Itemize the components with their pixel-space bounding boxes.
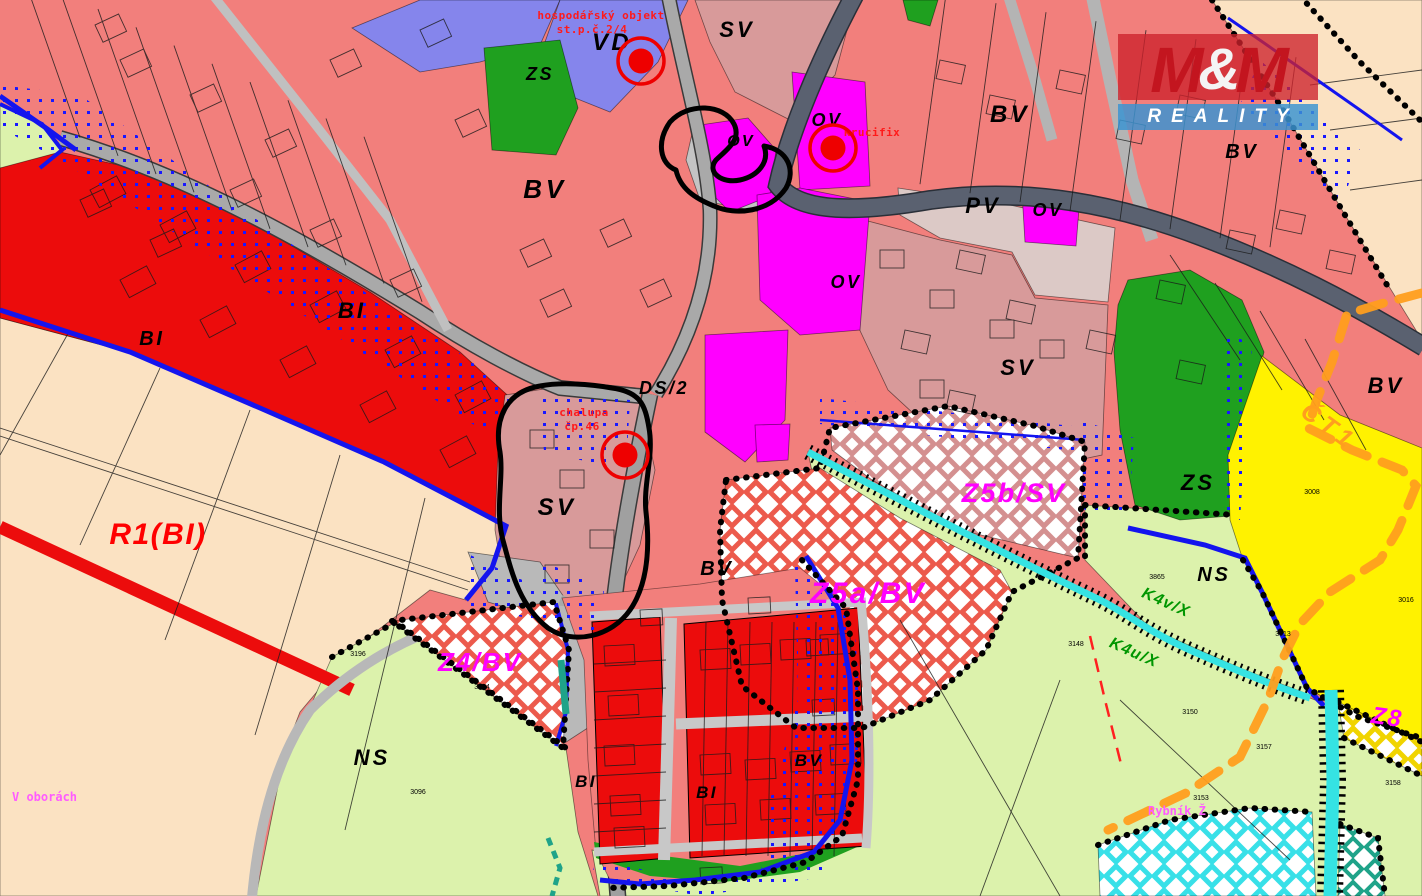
map-label-zs: ZS (1180, 470, 1215, 495)
map-label-ns: NS (354, 745, 391, 770)
map-label-chalupa: chalupa (559, 406, 608, 419)
parcel-number-3196: 3196 (350, 651, 366, 658)
parcel-number-3150: 3150 (1182, 709, 1198, 716)
map-label-z4-bv: Z4/BV (437, 647, 523, 677)
map-label-bv: BV (1225, 141, 1258, 163)
map-label-z5b-sv: Z5b/SV (961, 478, 1066, 508)
map-label-z5a-bv: Z5a/BV (809, 577, 927, 610)
map-label-bv: BV (700, 558, 733, 580)
parcel-number-3008: 3008 (1304, 489, 1320, 496)
zone-ov-e (755, 424, 790, 462)
map-label-bv: BV (795, 751, 823, 770)
map-label-bv: BV (990, 101, 1030, 128)
map-label-bi: BI (575, 772, 597, 791)
parcel-number-3096: 3096 (410, 789, 426, 796)
map-label-bv: BV (523, 174, 566, 204)
parcel-number-3148: 3148 (1068, 641, 1084, 648)
map-label-sv: SV (538, 494, 577, 521)
stream2-main (1330, 690, 1333, 896)
map-label-sv: SV (719, 17, 755, 42)
map-label-ov: OV (830, 272, 861, 292)
map-label-hospodářský-objekt: hospodářský objekt (537, 9, 664, 22)
map-label-ov: OV (1032, 200, 1063, 220)
map-label-bi: BI (139, 328, 165, 350)
map-label-rybník-ž: Rybník Ž (1148, 803, 1206, 818)
map-label-bi: BI (338, 298, 366, 323)
parcel-number-3016: 3016 (1398, 597, 1414, 604)
map-label-v-oborách: V oborách (12, 790, 77, 804)
map-label-sv: SV (1000, 355, 1036, 380)
parcel-number-3865: 3865 (1149, 574, 1165, 581)
parcel-number-3013: 3013 (1275, 631, 1291, 638)
parcel-number-3158: 3158 (1385, 780, 1401, 787)
parcel-number-3153: 3153 (1193, 795, 1209, 802)
map-label-bi: BI (696, 783, 718, 802)
map-label-zs: ZS (525, 64, 554, 84)
map-label-ds-2: DS/2 (639, 378, 689, 398)
zoning-map-stage: VDSVZSBVOVOVOVOVBVBVPVBIBIDS/2SVSVBVZSBV… (0, 0, 1422, 896)
zone-zs-top (484, 40, 578, 155)
canal-teal (561, 660, 566, 714)
map-label-r1-bi-: R1(BI) (109, 518, 206, 551)
map-label-ov: OV (727, 133, 755, 150)
parcel-number-3157: 3157 (1256, 744, 1272, 751)
map-label-ns: NS (1197, 564, 1230, 586)
map-label-st-p-č-2-4: st.p.č.2/4 (557, 23, 628, 36)
map-label-z8: Z8 (1368, 702, 1404, 733)
zoning-map-canvas: VDSVZSBVOVOVOVOVBVBVPVBIBIDS/2SVSVBVZSBV… (0, 0, 1422, 896)
map-label-pv: PV (965, 193, 1001, 218)
map-label-čp-46: čp.46 (564, 420, 599, 433)
map-label-bv: BV (1368, 373, 1405, 398)
parcel-number-3194: 3194 (474, 684, 490, 691)
